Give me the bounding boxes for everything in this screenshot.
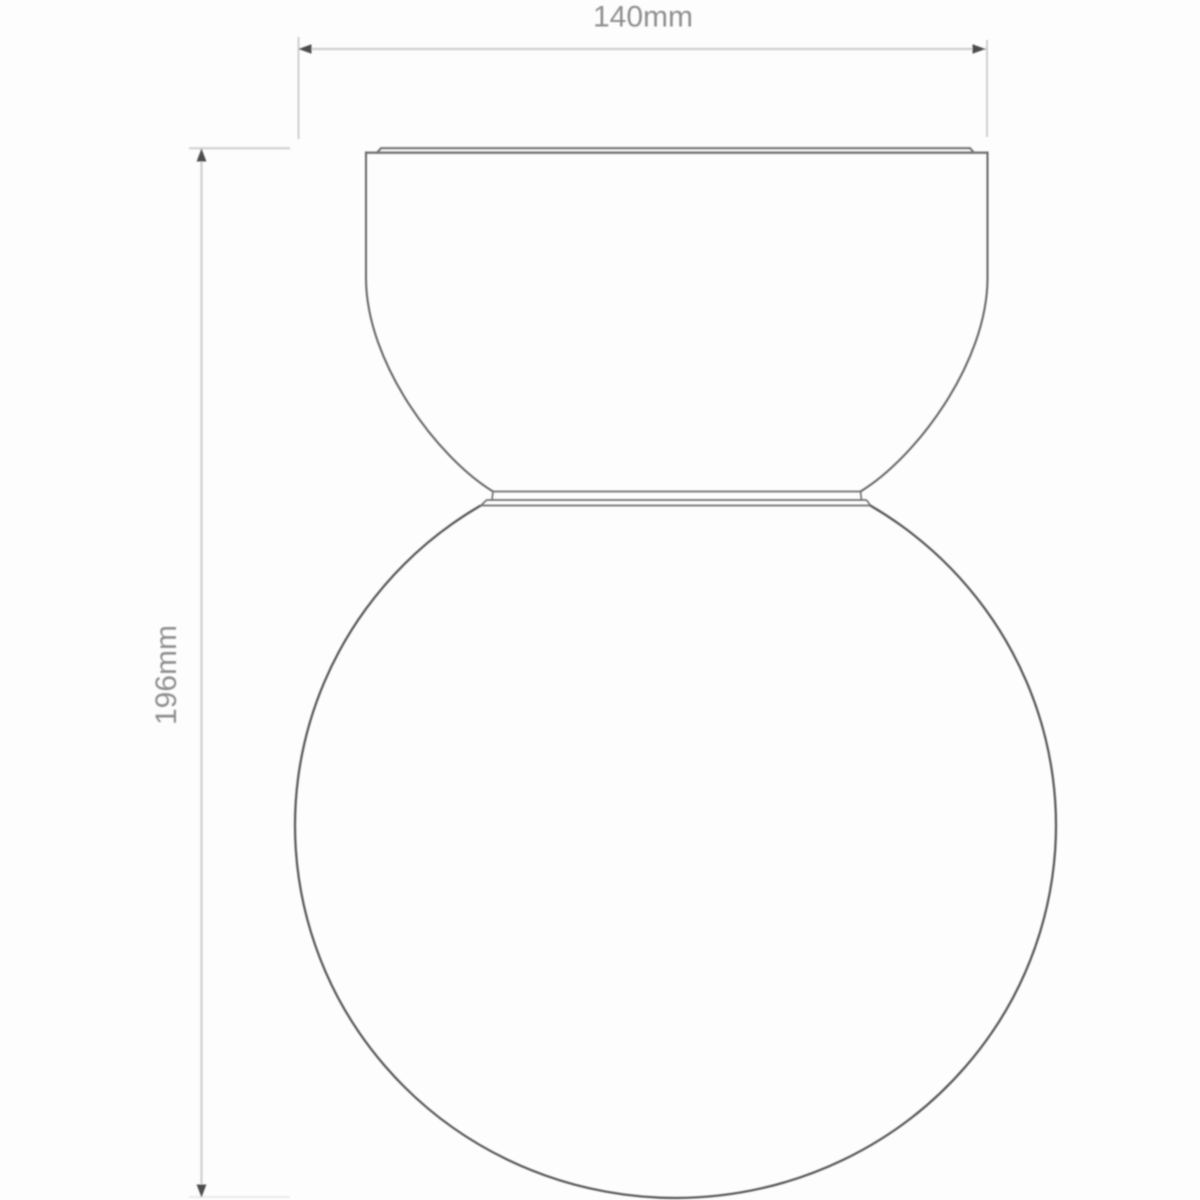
svg-text:196mm: 196mm <box>150 625 183 725</box>
svg-text:140mm: 140mm <box>593 1 693 34</box>
